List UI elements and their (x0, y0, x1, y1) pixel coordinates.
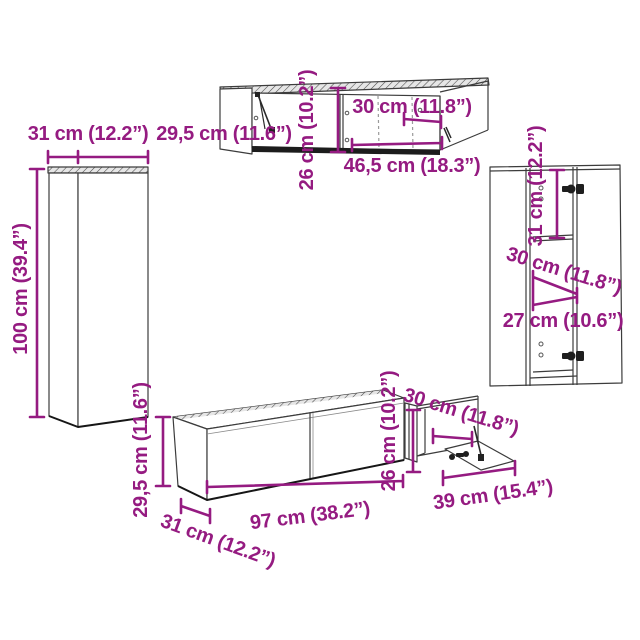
top-cabinet-depth-label: 30 cm (11.8”) (352, 97, 472, 117)
left-cabinet-width-label: 31 cm (12.2”) (28, 124, 149, 144)
top-cabinet-height-label: 26 cm (10.2”) (297, 70, 317, 191)
top-cabinet-side-label: 29,5 cm (11.6”) (156, 124, 292, 144)
side-cabinet-height-label: 26 cm (10.2”) (379, 371, 399, 492)
left-cabinet-height-label: 100 cm (39.4”) (11, 223, 31, 354)
right-cabinet-width-label: 27 cm (10.6”) (503, 311, 624, 331)
bench-height-label: 29,5 cm (11.6”) (131, 382, 151, 518)
dim-line-left-cabinet-height (30, 169, 44, 417)
furniture-dimension-diagram: 31 cm (12.2”) 100 cm (39.4”) 29,5 cm (11… (0, 0, 640, 640)
dim-line-bench-height (156, 417, 170, 486)
top-cabinet-width-label: 46,5 cm (18.3”) (344, 156, 481, 176)
right-cabinet-inner-height-label: 31 cm (12.2”) (526, 126, 546, 247)
dim-line-left-cabinet-width (48, 151, 148, 163)
